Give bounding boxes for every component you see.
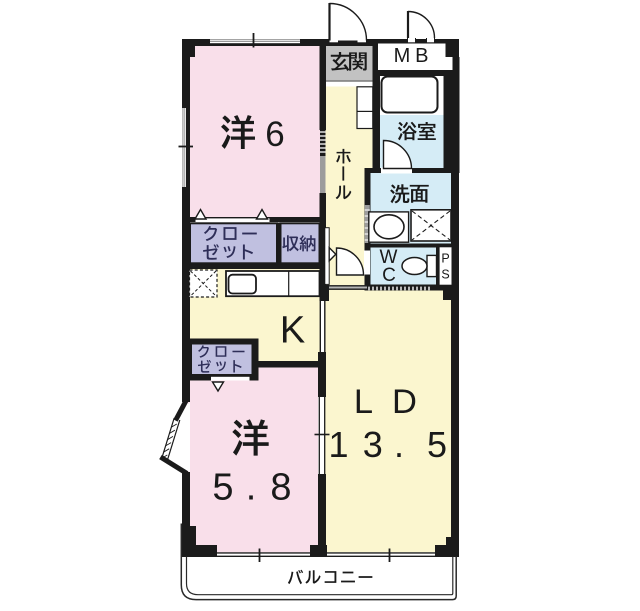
svg-text:.: . — [246, 467, 257, 509]
svg-text:D: D — [392, 383, 417, 421]
svg-text:8: 8 — [270, 467, 291, 509]
svg-text:M: M — [394, 45, 411, 67]
svg-text:K: K — [280, 310, 305, 352]
svg-text:3: 3 — [363, 424, 383, 465]
svg-text:C: C — [382, 265, 396, 286]
svg-text:.: . — [394, 424, 404, 465]
svg-text:1: 1 — [328, 424, 348, 465]
svg-text:5: 5 — [212, 467, 233, 509]
svg-text:L: L — [354, 383, 373, 421]
svg-text:5: 5 — [427, 424, 447, 465]
svg-text:P: P — [441, 252, 449, 266]
svg-text:B: B — [415, 45, 428, 67]
svg-text:S: S — [441, 268, 449, 282]
svg-text:6: 6 — [265, 115, 284, 154]
